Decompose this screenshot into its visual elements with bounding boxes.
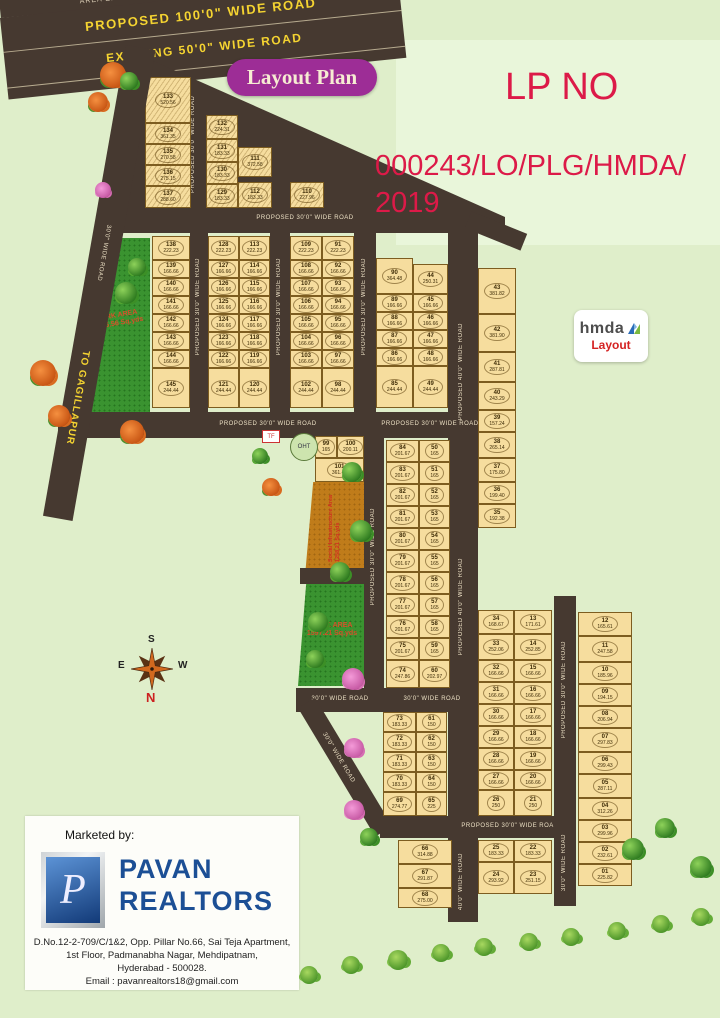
road-v2-label: PROPOSED 30'0" WIDE ROAD bbox=[195, 258, 201, 355]
plot-103: 103166.66 bbox=[290, 350, 322, 368]
plot-area: 166.66 bbox=[525, 715, 540, 721]
plot-area: 222.23 bbox=[330, 248, 345, 254]
plot-number: 73 bbox=[396, 716, 403, 722]
plot-number: 76 bbox=[399, 621, 406, 627]
plot-120: 120244.44 bbox=[239, 368, 270, 408]
pink-flower-tree-icon bbox=[342, 668, 364, 690]
plot-31: 31166.66 bbox=[478, 682, 514, 704]
plot-61: 61150 bbox=[416, 712, 447, 732]
plot-number: 54 bbox=[431, 533, 438, 539]
plot-129: 129183.33 bbox=[206, 184, 238, 208]
plot-number: 114 bbox=[250, 263, 260, 269]
plot-130: 130183.33 bbox=[206, 162, 238, 184]
plot-area: 166.66 bbox=[163, 359, 178, 365]
plot-81: 81201.67 bbox=[386, 506, 419, 528]
plot-08: 08206.94 bbox=[578, 706, 632, 728]
plot-84: 84201.67 bbox=[386, 440, 419, 462]
plot-116: 116166.66 bbox=[239, 296, 270, 314]
plot-area: 299.43 bbox=[597, 763, 612, 769]
plot-number: 102 bbox=[301, 382, 311, 388]
plot-number: 117 bbox=[250, 317, 260, 323]
plot-area: 287.11 bbox=[598, 786, 613, 792]
plot-area: 288.60 bbox=[160, 197, 175, 203]
plot-area: 206.94 bbox=[597, 717, 612, 723]
plot-number: 116 bbox=[250, 299, 260, 305]
plot-16: 16166.66 bbox=[514, 682, 552, 704]
social-infrastructure-label: Social Infrastructure Area 1258.21 Sq.yd… bbox=[328, 488, 342, 562]
plot-111: 111372.58 bbox=[238, 147, 272, 177]
plot-45: 45166.66 bbox=[413, 294, 448, 312]
plot-102: 102244.44 bbox=[290, 368, 322, 408]
bush-icon bbox=[300, 966, 318, 984]
plot-number: 55 bbox=[431, 555, 438, 561]
plot-128: 128222.23 bbox=[208, 236, 239, 260]
plot-number: 37 bbox=[494, 464, 501, 470]
plot-area: 183.33 bbox=[214, 151, 229, 157]
plot-number: 104 bbox=[301, 335, 311, 341]
plot-area: 166.66 bbox=[216, 287, 231, 293]
plot-67: 67291.87 bbox=[398, 864, 452, 888]
plot-number: 138 bbox=[166, 242, 176, 248]
road-h2-label-2: PROPOSED 30'0" WIDE ROAD bbox=[370, 421, 490, 427]
plot-124: 124166.66 bbox=[208, 314, 239, 332]
plot-136: 136275.15 bbox=[145, 165, 191, 186]
plot-area: 165 bbox=[430, 561, 438, 567]
plot-area: 291.87 bbox=[417, 876, 432, 882]
plot-area: 252.06 bbox=[488, 647, 503, 653]
plot-area: 201.67 bbox=[395, 451, 410, 457]
plot-number: 86 bbox=[391, 351, 398, 357]
plot-122: 122166.66 bbox=[208, 350, 239, 368]
plot-area: 244.44 bbox=[247, 388, 262, 394]
plot-97: 97166.66 bbox=[322, 350, 354, 368]
plot-83: 83201.67 bbox=[386, 462, 419, 484]
plot-area: 165 bbox=[430, 583, 438, 589]
plot-15: 15166.66 bbox=[514, 660, 552, 682]
plot-number: 01 bbox=[602, 869, 609, 875]
plot-area: 166.66 bbox=[216, 305, 231, 311]
plot-number: 89 bbox=[391, 297, 398, 303]
plot-number: 67 bbox=[422, 870, 429, 876]
plot-number: 56 bbox=[431, 577, 438, 583]
bush-icon bbox=[520, 933, 538, 951]
plot-114: 114166.66 bbox=[239, 260, 270, 278]
plot-50: 50165 bbox=[419, 440, 450, 462]
plot-number: 02 bbox=[602, 847, 609, 853]
plot-121: 121244.44 bbox=[208, 368, 239, 408]
plot-area: 244.44 bbox=[423, 387, 438, 393]
plot-number: 31 bbox=[493, 687, 500, 693]
plot-49: 49244.44 bbox=[413, 366, 448, 408]
orange-flower-tree-icon bbox=[88, 92, 108, 112]
plot-99: 99165 bbox=[315, 436, 337, 458]
green-tree-icon bbox=[115, 282, 137, 304]
plot-04: 04312.26 bbox=[578, 798, 632, 820]
plot-139: 139166.66 bbox=[152, 260, 190, 278]
plot-number: 07 bbox=[602, 734, 609, 740]
road-h3: PROPOSED 30'0" WIDE ROAD bbox=[380, 816, 576, 838]
plot-number: 72 bbox=[396, 736, 403, 742]
plot-number: 113 bbox=[250, 242, 260, 248]
plot-area: 293.92 bbox=[488, 878, 503, 884]
plot-94: 94166.66 bbox=[322, 296, 354, 314]
plot-number: 41 bbox=[494, 361, 501, 367]
plot-number: 84 bbox=[399, 445, 406, 451]
plot-59: 59165 bbox=[419, 638, 450, 660]
plot-area: 166.66 bbox=[330, 305, 345, 311]
plot-number: 107 bbox=[301, 281, 311, 287]
plot-area: 166.66 bbox=[423, 321, 438, 327]
green-tree-icon bbox=[350, 520, 372, 542]
plot-25: 25183.33 bbox=[478, 840, 514, 862]
plot-area: 201.67 bbox=[395, 561, 410, 567]
plot-number: 105 bbox=[301, 317, 311, 323]
plot-105: 105166.66 bbox=[290, 314, 322, 332]
plot-number: 140 bbox=[166, 281, 176, 287]
plot-number: 139 bbox=[166, 263, 176, 269]
plot-area: 361.35 bbox=[160, 134, 175, 140]
plot-72: 72183.33 bbox=[383, 732, 416, 752]
plot-area: 200.11 bbox=[343, 447, 358, 453]
pink-flower-tree-icon bbox=[95, 182, 111, 198]
green-tree-icon bbox=[360, 828, 378, 846]
plot-area: 165 bbox=[430, 649, 438, 655]
plot-area: 244.44 bbox=[163, 388, 178, 394]
plot-area: 250.31 bbox=[423, 279, 438, 285]
pink-flower-tree-icon bbox=[344, 738, 364, 758]
plot-number: 49 bbox=[427, 381, 434, 387]
road-h4-label-2: 30'0" WIDE ROAD bbox=[392, 696, 472, 702]
green-tree-icon bbox=[120, 72, 138, 90]
bush-icon bbox=[562, 928, 580, 946]
plot-66: 66314.88 bbox=[398, 840, 452, 864]
plot-area: 243.29 bbox=[489, 396, 504, 402]
plot-number: 59 bbox=[431, 643, 438, 649]
plot-57: 57165 bbox=[419, 594, 450, 616]
plot-number: 38 bbox=[494, 439, 501, 445]
plot-107: 107166.66 bbox=[290, 278, 322, 296]
plot-127: 127166.66 bbox=[208, 260, 239, 278]
plot-132: 132224.31 bbox=[206, 115, 238, 139]
plot-number: 122 bbox=[218, 353, 228, 359]
plot-area: 171.61 bbox=[525, 622, 540, 628]
plot-area: 222.23 bbox=[163, 248, 178, 254]
green-tree-icon bbox=[128, 258, 146, 276]
plot-number: 53 bbox=[431, 511, 438, 517]
plot-area: 244.44 bbox=[298, 388, 313, 394]
pavan-logo: P bbox=[41, 852, 105, 928]
plot-69: 69274.77 bbox=[383, 792, 416, 816]
plot-number: 85 bbox=[391, 381, 398, 387]
plot-area: 166.66 bbox=[298, 269, 313, 275]
plot-52: 52165 bbox=[419, 484, 450, 506]
plot-number: 96 bbox=[335, 335, 342, 341]
road-40-label-3: 40'0" WIDE ROAD bbox=[458, 853, 464, 910]
plot-area: 275.15 bbox=[160, 176, 175, 182]
road-h2: PROPOSED 30'0" WIDE ROAD PROPOSED 30'0" … bbox=[58, 412, 452, 438]
plot-90: 90364.48 bbox=[376, 258, 413, 294]
plot-126: 126166.66 bbox=[208, 278, 239, 296]
plot-65: 65225 bbox=[416, 792, 447, 816]
plot-92: 92166.66 bbox=[322, 260, 354, 278]
plot-117: 117166.66 bbox=[239, 314, 270, 332]
plot-area: 166.66 bbox=[247, 269, 262, 275]
plot-area: 183.33 bbox=[214, 173, 229, 179]
plot-area: 150 bbox=[427, 722, 435, 728]
plot-number: 109 bbox=[301, 242, 311, 248]
bush-icon bbox=[652, 915, 670, 933]
plot-area: 183.33 bbox=[392, 722, 407, 728]
plot-17: 17166.66 bbox=[514, 704, 552, 726]
plot-number: 19 bbox=[530, 753, 537, 759]
plot-number: 83 bbox=[399, 467, 406, 473]
plot-area: 165 bbox=[430, 539, 438, 545]
plot-63: 63150 bbox=[416, 752, 447, 772]
road-v6: PROPOSED 30'0" WIDE ROAD bbox=[364, 438, 384, 710]
plot-118: 118166.66 bbox=[239, 332, 270, 350]
plot-number: 42 bbox=[494, 327, 501, 333]
bush-icon bbox=[432, 944, 450, 962]
plot-number: 108 bbox=[301, 263, 311, 269]
plot-area: 166.66 bbox=[423, 303, 438, 309]
plot-138: 138222.23 bbox=[152, 236, 190, 260]
plot-area: 201.67 bbox=[395, 473, 410, 479]
plot-108: 108166.66 bbox=[290, 260, 322, 278]
road-v6-label: PROPOSED 30'0" WIDE ROAD bbox=[370, 508, 376, 605]
plot-area: 247.86 bbox=[395, 674, 410, 680]
plot-area: 166.66 bbox=[488, 759, 503, 765]
plot-96: 96166.66 bbox=[322, 332, 354, 350]
plot-40: 40243.29 bbox=[478, 382, 516, 410]
plot-area: 175.80 bbox=[489, 470, 504, 476]
plot-number: 87 bbox=[391, 333, 398, 339]
plot-number: 65 bbox=[428, 798, 435, 804]
tf-marker: TF bbox=[262, 430, 280, 443]
plot-145: 145244.44 bbox=[152, 368, 190, 408]
plot-area: 166.66 bbox=[216, 323, 231, 329]
plot-area: 165 bbox=[430, 627, 438, 633]
plot-06: 06299.43 bbox=[578, 752, 632, 774]
plot-area: 166.66 bbox=[298, 305, 313, 311]
green-tree-icon bbox=[306, 650, 324, 668]
plot-number: 88 bbox=[391, 315, 398, 321]
plot-area: 157.24 bbox=[489, 421, 504, 427]
plot-71: 71183.33 bbox=[383, 752, 416, 772]
plot-number: 14 bbox=[530, 641, 537, 647]
plot-area: 275.00 bbox=[417, 898, 432, 904]
plot-number: 142 bbox=[166, 317, 176, 323]
tf-label: TF bbox=[267, 434, 274, 440]
plot-36: 36199.40 bbox=[478, 482, 516, 504]
plot-20: 20166.66 bbox=[514, 770, 552, 790]
plot-141: 141166.66 bbox=[152, 296, 190, 314]
plot-number: 23 bbox=[530, 872, 537, 878]
plot-number: 12 bbox=[602, 618, 609, 624]
plot-area: 250 bbox=[492, 803, 500, 809]
plot-number: 70 bbox=[396, 776, 403, 782]
plot-143: 143166.66 bbox=[152, 332, 190, 350]
plot-number: 26 bbox=[493, 797, 500, 803]
plot-area: 165 bbox=[430, 605, 438, 611]
plot-77: 77201.67 bbox=[386, 594, 419, 616]
plot-number: 95 bbox=[335, 317, 342, 323]
plot-91: 91222.23 bbox=[322, 236, 354, 260]
plot-number: 18 bbox=[530, 731, 537, 737]
green-tree-icon bbox=[622, 838, 644, 860]
plot-area: 150 bbox=[427, 762, 435, 768]
plot-12: 12165.61 bbox=[578, 612, 632, 636]
plot-56: 56165 bbox=[419, 572, 450, 594]
bush-icon bbox=[475, 938, 493, 956]
plot-137: 137288.60 bbox=[145, 186, 191, 208]
plot-number: 22 bbox=[530, 845, 537, 851]
plot-number: 120 bbox=[249, 382, 259, 388]
plot-area: 364.48 bbox=[387, 276, 402, 282]
plot-number: 44 bbox=[427, 273, 434, 279]
plot-number: 29 bbox=[493, 731, 500, 737]
green-tree-icon bbox=[308, 612, 328, 632]
plot-number: 91 bbox=[335, 242, 342, 248]
compass-south-label: S bbox=[148, 634, 155, 645]
plot-area: 225.82 bbox=[597, 875, 612, 881]
plot-60: 60202.97 bbox=[419, 660, 450, 688]
plot-area: 287.81 bbox=[489, 367, 504, 373]
plot-27: 27166.66 bbox=[478, 770, 514, 790]
plot-number: 43 bbox=[494, 285, 501, 291]
green-tree-icon bbox=[342, 462, 362, 482]
plot-26: 26250 bbox=[478, 790, 514, 816]
address-line-2: 1st Floor, Padmanabha Nagar, Mehdipatnam… bbox=[25, 949, 299, 962]
plot-10: 10185.96 bbox=[578, 662, 632, 684]
plot-area: 225 bbox=[427, 804, 435, 810]
plot-11: 11247.58 bbox=[578, 636, 632, 662]
green-tree-icon bbox=[252, 448, 268, 464]
plot-area: 166.66 bbox=[387, 321, 402, 327]
bush-icon bbox=[692, 908, 710, 926]
plot-number: 27 bbox=[493, 774, 500, 780]
road-40-label-2: PROPOSED 40'0" WIDE ROAD bbox=[458, 558, 464, 655]
plot-area: 165 bbox=[430, 473, 438, 479]
plot-area: 166.66 bbox=[525, 693, 540, 699]
plot-number: 143 bbox=[166, 335, 176, 341]
road-v2: PROPOSED 30'0" WIDE ROAD bbox=[190, 233, 208, 413]
plot-area: 201.67 bbox=[395, 517, 410, 523]
plot-number: 16 bbox=[530, 687, 537, 693]
pavan-address: D.No.12-2-709/C/1&2, Opp. Pillar No.66, … bbox=[25, 936, 299, 988]
plot-area: 251.15 bbox=[525, 878, 540, 884]
plot-82: 82201.67 bbox=[386, 484, 419, 506]
plot-number: 103 bbox=[301, 353, 311, 359]
plot-area: 166.66 bbox=[216, 341, 231, 347]
plot-number: 04 bbox=[602, 803, 609, 809]
plot-area: 166.66 bbox=[163, 305, 178, 311]
plot-number: 99 bbox=[323, 441, 330, 447]
plot-100: 100200.11 bbox=[337, 436, 364, 458]
plot-area: 274.77 bbox=[392, 804, 407, 810]
plot-area: 312.26 bbox=[597, 809, 612, 815]
plot-number: 124 bbox=[218, 317, 228, 323]
plot-58: 58165 bbox=[419, 616, 450, 638]
address-line-1: D.No.12-2-709/C/1&2, Opp. Pillar No.66, … bbox=[25, 936, 299, 949]
plot-area: 297.83 bbox=[597, 740, 612, 746]
plot-112: 112183.33 bbox=[238, 182, 272, 208]
plot-number: 40 bbox=[494, 390, 501, 396]
plot-76: 76201.67 bbox=[386, 616, 419, 638]
green-tree-icon bbox=[690, 856, 712, 878]
plot-area: 165 bbox=[430, 451, 438, 457]
plot-42: 42381.90 bbox=[478, 314, 516, 352]
lp-number-line1: 000243/LO/PLG/HMDA/ bbox=[375, 148, 720, 185]
plot-07: 07297.83 bbox=[578, 728, 632, 752]
plot-area: 166.66 bbox=[488, 693, 503, 699]
plot-area: 201.67 bbox=[395, 649, 410, 655]
plot-area: 166.66 bbox=[330, 323, 345, 329]
plot-area: 166.66 bbox=[330, 359, 345, 365]
plot-123: 123166.66 bbox=[208, 332, 239, 350]
plot-area: 202.97 bbox=[427, 674, 442, 680]
plot-area: 150 bbox=[427, 742, 435, 748]
plot-115: 115166.66 bbox=[239, 278, 270, 296]
plot-area: 150 bbox=[427, 782, 435, 788]
plot-area: 224.31 bbox=[214, 127, 229, 133]
plot-area: 168.67 bbox=[488, 622, 503, 628]
plot-area: 250 bbox=[529, 803, 537, 809]
bush-icon bbox=[388, 950, 408, 970]
plot-number: 145 bbox=[166, 382, 176, 388]
plot-area: 166.66 bbox=[387, 357, 402, 363]
plot-113: 113222.23 bbox=[239, 236, 270, 260]
plot-number: 126 bbox=[218, 281, 228, 287]
marketed-by-card: Marketed by: P PAVAN REALTORS D.No.12-2-… bbox=[25, 816, 299, 990]
plot-number: 141 bbox=[166, 299, 176, 305]
plot-64: 64150 bbox=[416, 772, 447, 792]
plot-area: 247.58 bbox=[597, 649, 612, 655]
plot-number: 34 bbox=[493, 616, 500, 622]
plot-14: 14252.85 bbox=[514, 634, 552, 660]
plot-area: 166.66 bbox=[387, 303, 402, 309]
plot-number: 50 bbox=[431, 445, 438, 451]
plot-95: 95166.66 bbox=[322, 314, 354, 332]
hmda-layout-text: Layout bbox=[591, 338, 630, 352]
plot-number: 61 bbox=[428, 716, 435, 722]
plot-area: 166.66 bbox=[525, 671, 540, 677]
plot-number: 75 bbox=[399, 643, 406, 649]
road-v4: PROPOSED 30'0" WIDE ROAD bbox=[354, 233, 376, 413]
plot-area: 520.56 bbox=[160, 100, 175, 106]
plot-area: 183.33 bbox=[214, 196, 229, 202]
plot-number: 17 bbox=[530, 709, 537, 715]
plot-62: 62150 bbox=[416, 732, 447, 752]
plot-area: 165.61 bbox=[597, 624, 612, 630]
plot-24: 24293.92 bbox=[478, 862, 514, 894]
email-line: Email : pavanrealtors18@gmail.com bbox=[25, 975, 299, 988]
orange-flower-tree-icon bbox=[262, 478, 280, 496]
plot-area: 201.67 bbox=[395, 539, 410, 545]
plot-05: 05287.11 bbox=[578, 774, 632, 798]
plot-35: 35192.38 bbox=[478, 504, 516, 528]
plot-21: 21250 bbox=[514, 790, 552, 816]
plot-number: 11 bbox=[602, 643, 608, 649]
plot-area: 201.67 bbox=[395, 605, 410, 611]
road-v8: PROPOSED 30'0" WIDE ROAD 30'0" WIDE ROAD bbox=[554, 596, 576, 906]
plot-area: 201.67 bbox=[395, 583, 410, 589]
plot-144: 144166.66 bbox=[152, 350, 190, 368]
plot-number: 90 bbox=[391, 270, 398, 276]
road-v8-label-1: PROPOSED 30'0" WIDE ROAD bbox=[561, 641, 567, 738]
plot-28: 28166.66 bbox=[478, 748, 514, 770]
plot-area: 222.23 bbox=[216, 248, 231, 254]
pavan-brand-line1: PAVAN bbox=[119, 854, 213, 885]
